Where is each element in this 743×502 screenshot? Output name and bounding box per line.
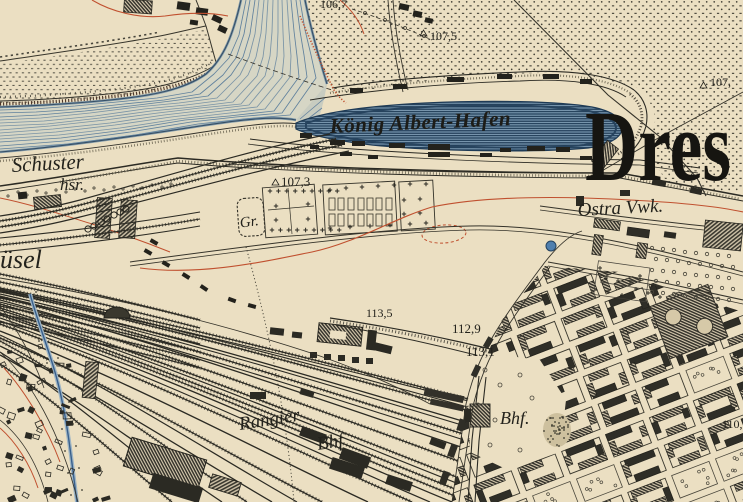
svg-text:106,7: 106,7 [320, 0, 347, 11]
svg-text:hsr.: hsr. [60, 175, 84, 194]
svg-text:107,3: 107,3 [281, 174, 310, 189]
svg-text:107,5: 107,5 [430, 29, 457, 43]
svg-text:Ostra Vwk.: Ostra Vwk. [577, 196, 663, 221]
svg-text:112,9: 112,9 [452, 321, 481, 336]
svg-text:107,: 107, [710, 75, 731, 89]
svg-text:113,1: 113,1 [466, 344, 495, 359]
svg-text:110,: 110, [722, 417, 743, 431]
svg-text:Dres: Dres [585, 91, 731, 203]
svg-text:113,5: 113,5 [366, 306, 393, 320]
svg-text:Schuster: Schuster [11, 149, 85, 177]
svg-text:Bhf.: Bhf. [500, 408, 530, 428]
svg-text:üsel: üsel [0, 245, 42, 274]
svg-text:Gr.: Gr. [239, 213, 260, 231]
